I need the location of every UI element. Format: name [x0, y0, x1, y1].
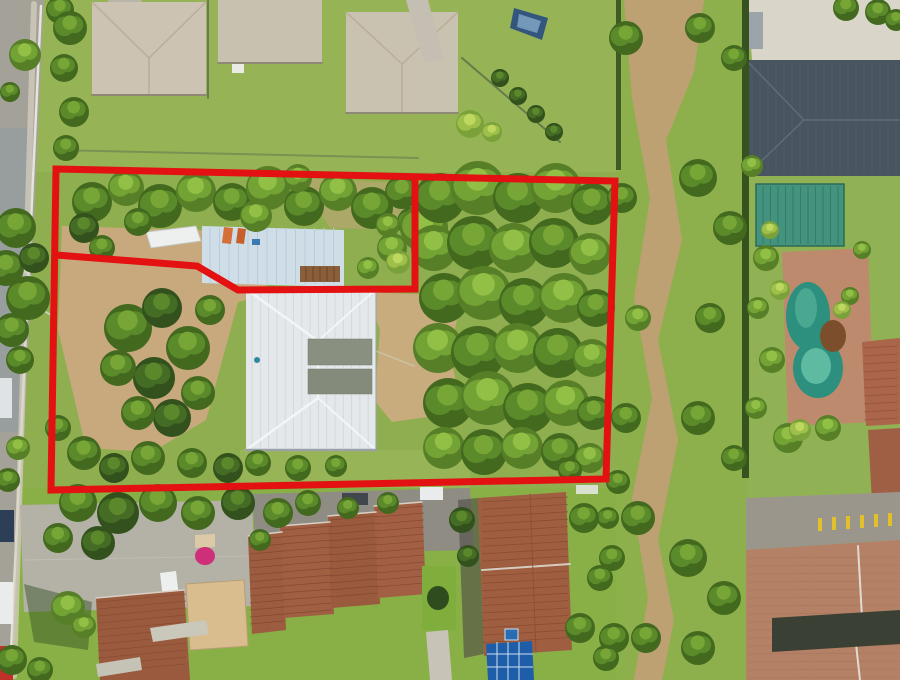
tree	[383, 495, 392, 504]
tree	[556, 386, 575, 405]
tree	[766, 350, 777, 361]
tree	[153, 293, 170, 310]
tree	[776, 283, 784, 291]
tree	[747, 158, 756, 167]
tree	[632, 308, 643, 319]
parking-dash	[888, 513, 892, 526]
tree	[703, 307, 716, 320]
tree	[690, 164, 706, 180]
roof-panel	[308, 369, 372, 394]
tree	[292, 458, 303, 469]
tree	[723, 215, 737, 229]
parking-dash	[874, 514, 878, 527]
car	[0, 378, 12, 418]
tree	[583, 447, 596, 460]
tree	[766, 223, 774, 231]
roof-vent	[254, 357, 260, 363]
aerial-scene	[0, 0, 900, 680]
tree	[514, 89, 522, 97]
tree	[67, 101, 80, 114]
tree	[639, 627, 652, 640]
tree	[565, 461, 575, 471]
tree	[330, 178, 346, 194]
tree	[547, 335, 568, 356]
tree	[164, 404, 180, 420]
tree	[249, 204, 262, 217]
tree	[728, 48, 739, 59]
tree	[203, 299, 216, 312]
tree	[891, 12, 900, 21]
tree	[91, 530, 105, 544]
building-cream	[186, 580, 248, 650]
tree	[83, 187, 100, 204]
tree	[584, 344, 600, 360]
car	[0, 510, 14, 542]
tree	[27, 247, 40, 260]
tree	[295, 191, 312, 208]
tree	[187, 177, 204, 194]
tree	[221, 457, 234, 470]
tree	[606, 548, 617, 559]
path	[426, 630, 452, 680]
tree	[603, 510, 612, 519]
garden-bed	[820, 320, 846, 352]
tree	[587, 400, 601, 414]
tree	[54, 0, 66, 11]
tree	[363, 192, 381, 210]
tree	[476, 378, 499, 401]
tree	[385, 237, 398, 250]
tree	[691, 405, 705, 419]
tree	[631, 505, 645, 519]
tree	[145, 362, 163, 380]
tree	[858, 243, 866, 251]
tree	[63, 15, 77, 29]
pool-shallow	[801, 348, 831, 384]
tree	[872, 2, 883, 13]
tree	[18, 282, 36, 300]
tree	[680, 544, 696, 560]
tree	[753, 300, 762, 309]
tree	[691, 635, 705, 649]
parking-dash	[846, 516, 850, 529]
tree	[607, 627, 620, 640]
tree	[77, 217, 90, 230]
parking-dash	[818, 518, 822, 531]
roof-house-b	[218, 0, 322, 64]
tree	[466, 333, 489, 356]
tree	[474, 435, 493, 454]
tree	[693, 17, 706, 30]
tree	[13, 439, 23, 449]
tree	[513, 432, 531, 450]
tree	[583, 188, 601, 206]
tree	[846, 289, 854, 297]
tree	[573, 617, 586, 630]
tree	[191, 500, 205, 514]
tree	[437, 385, 458, 406]
tree	[117, 310, 137, 330]
tree	[577, 507, 590, 520]
tree	[507, 330, 528, 351]
tree	[553, 280, 574, 301]
tree	[462, 223, 485, 246]
tree	[96, 238, 107, 249]
tree	[18, 43, 31, 56]
shed	[748, 12, 763, 49]
garden-bush	[427, 586, 449, 610]
tree	[619, 407, 632, 420]
ac-unit	[232, 64, 244, 73]
tree	[7, 213, 24, 230]
aerial-photo	[0, 0, 900, 680]
tree	[255, 532, 264, 541]
tree	[118, 175, 133, 190]
solar-panel	[505, 629, 518, 640]
tree	[60, 138, 71, 149]
tree	[751, 400, 760, 409]
tree	[5, 649, 18, 662]
tree	[464, 114, 476, 126]
tree	[231, 490, 245, 504]
tree	[550, 125, 558, 133]
tree	[6, 85, 14, 93]
tree	[178, 332, 196, 350]
tree	[224, 188, 240, 204]
tree	[619, 25, 633, 39]
solar-array	[486, 641, 534, 680]
tree	[594, 568, 605, 579]
tree	[14, 350, 26, 362]
tree	[838, 303, 846, 311]
tree	[185, 452, 198, 465]
tree	[5, 317, 19, 331]
tree	[795, 422, 804, 431]
tree	[435, 432, 453, 450]
car	[0, 582, 13, 624]
tree	[429, 180, 450, 201]
tree	[613, 473, 623, 483]
parking-dash	[860, 515, 864, 528]
tree	[79, 617, 89, 627]
tree	[131, 400, 145, 414]
tree	[110, 355, 125, 370]
tree	[463, 548, 472, 557]
tree	[343, 500, 352, 509]
roof-terracotta	[868, 428, 900, 502]
tree	[507, 180, 528, 201]
tree	[728, 448, 739, 459]
tree	[383, 216, 393, 226]
pool-shallow	[795, 288, 817, 328]
tree	[532, 107, 540, 115]
tree	[191, 380, 205, 394]
tree	[34, 660, 45, 671]
car	[420, 487, 443, 500]
parking-dash	[832, 517, 836, 530]
tree	[331, 458, 340, 467]
roof-terracotta	[862, 338, 900, 426]
tree	[77, 440, 91, 454]
roof-estate	[746, 60, 900, 176]
tree	[109, 497, 127, 515]
tree	[433, 280, 454, 301]
tree	[600, 648, 611, 659]
tree	[132, 212, 144, 224]
tree	[496, 71, 504, 79]
tree	[543, 225, 564, 246]
tree	[822, 418, 833, 429]
tree	[58, 58, 70, 70]
tree	[488, 125, 496, 133]
roof-panel	[308, 339, 372, 365]
tree	[141, 445, 155, 459]
brick-parking	[746, 540, 900, 680]
tree	[363, 260, 372, 269]
tree	[150, 190, 168, 208]
tree	[472, 273, 495, 296]
tree	[271, 502, 284, 515]
tree	[717, 585, 731, 599]
tree	[503, 230, 524, 251]
tree	[107, 457, 120, 470]
tree	[61, 595, 75, 609]
tree	[393, 253, 403, 263]
tree	[588, 294, 604, 310]
tree	[760, 248, 771, 259]
tree	[581, 238, 599, 256]
tree	[517, 390, 538, 411]
tree	[424, 231, 443, 250]
tree	[51, 527, 64, 540]
tree	[427, 330, 448, 351]
tree	[513, 285, 534, 306]
carport-item	[252, 239, 260, 245]
tree	[552, 438, 568, 454]
tree	[3, 471, 13, 481]
shed-white	[576, 485, 598, 494]
tent-awning	[195, 534, 215, 548]
tree	[252, 453, 263, 464]
tree	[395, 179, 409, 193]
tent	[195, 547, 215, 565]
tree	[302, 493, 313, 504]
tree	[456, 510, 467, 521]
